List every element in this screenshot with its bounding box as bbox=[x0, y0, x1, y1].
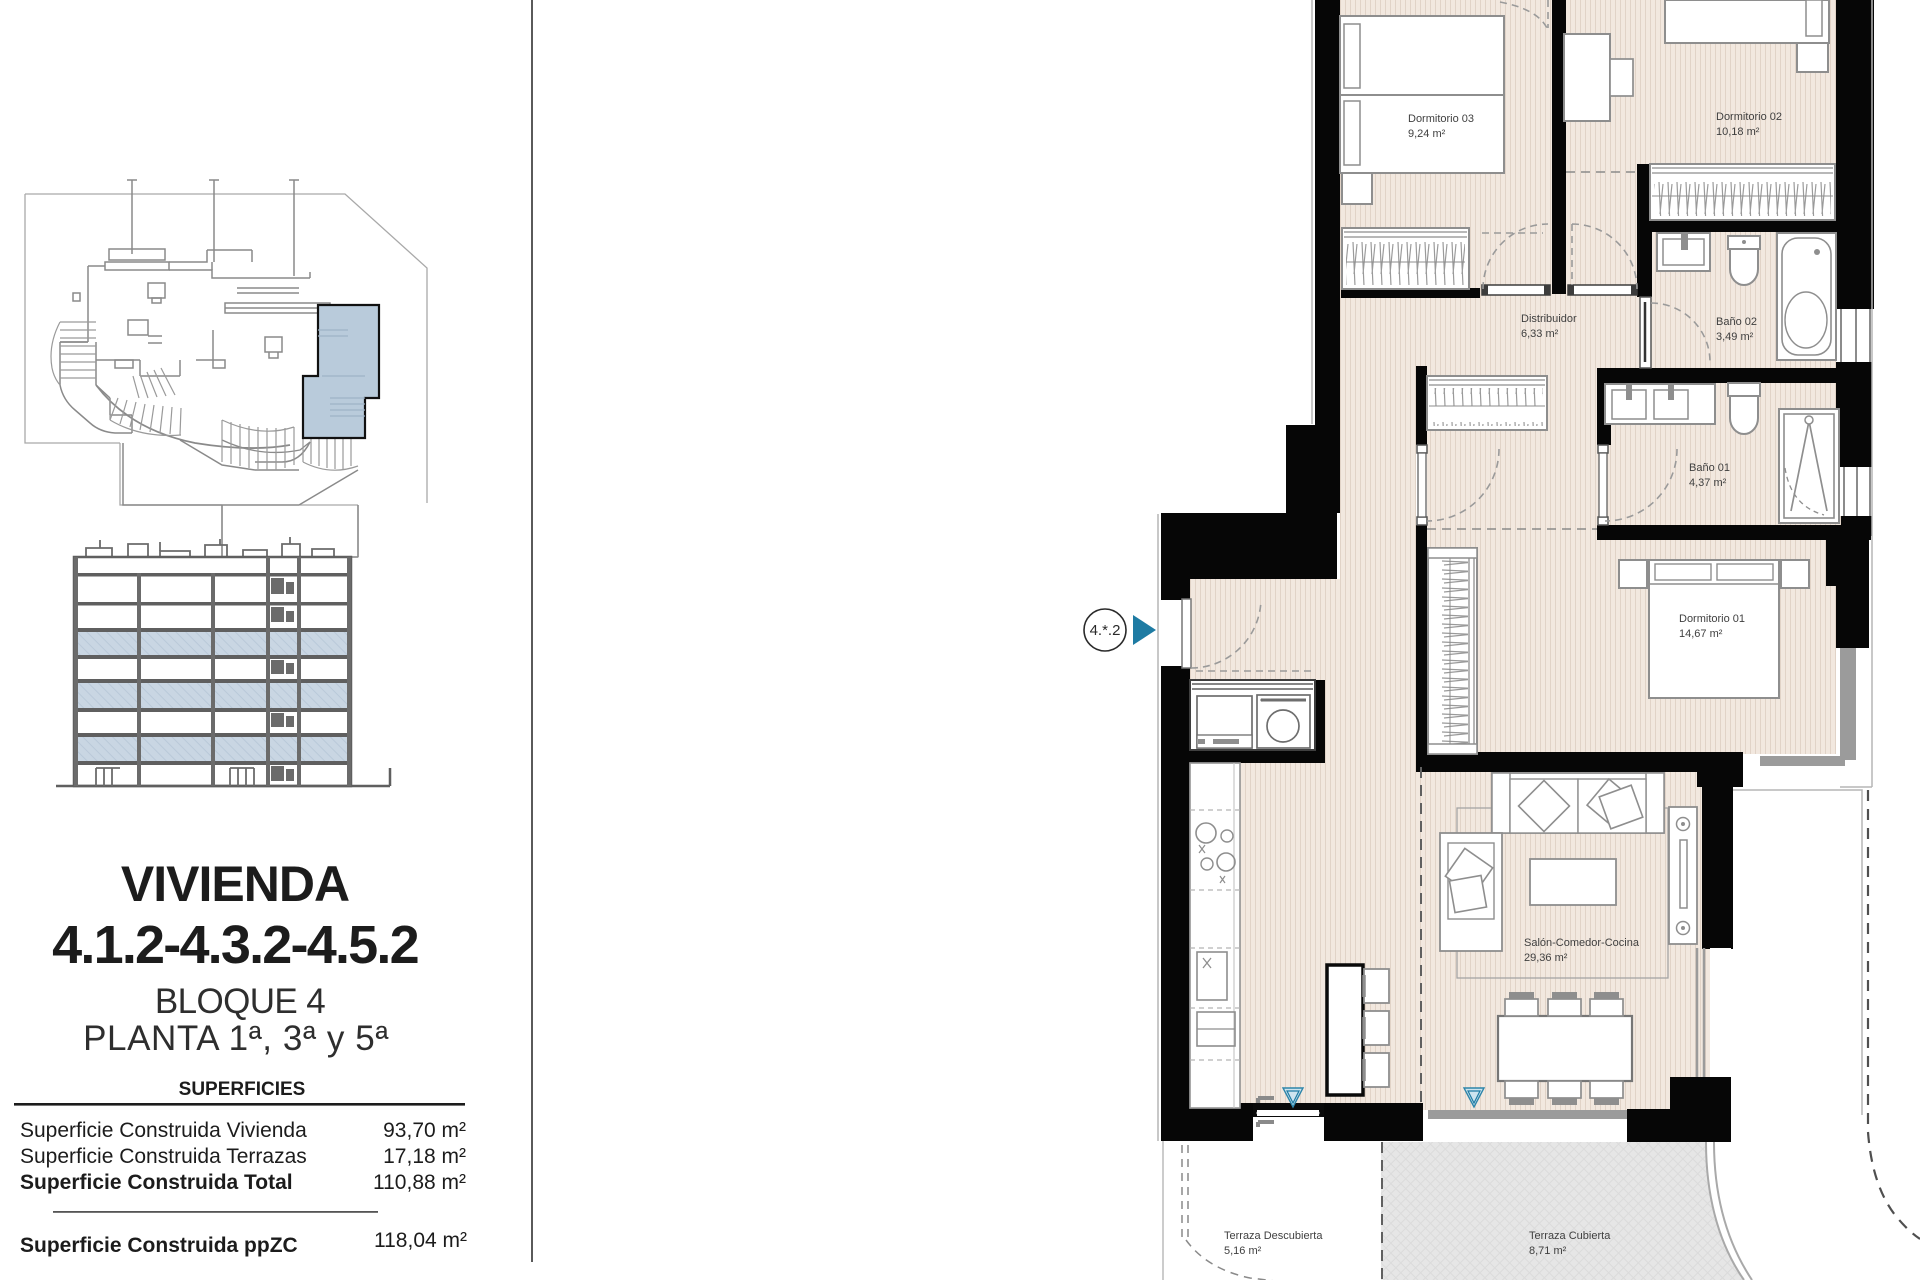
svg-text:14,67 m²: 14,67 m² bbox=[1679, 628, 1723, 640]
svg-text:Distribuidor: Distribuidor bbox=[1521, 313, 1577, 325]
svg-text:BLOQUE 4: BLOQUE 4 bbox=[155, 982, 325, 1021]
svg-text:110,88 m²: 110,88 m² bbox=[373, 1171, 466, 1194]
svg-text:8,71 m²: 8,71 m² bbox=[1529, 1245, 1567, 1257]
svg-text:Superficie Construida Vivienda: Superficie Construida Vivienda bbox=[20, 1119, 307, 1142]
svg-text:Terraza Descubierta: Terraza Descubierta bbox=[1224, 1230, 1323, 1242]
svg-text:6,33 m²: 6,33 m² bbox=[1521, 328, 1559, 340]
svg-text:Dormitorio 01: Dormitorio 01 bbox=[1679, 613, 1745, 625]
svg-text:Terraza Cubierta: Terraza Cubierta bbox=[1529, 1230, 1611, 1242]
svg-text:9,24 m²: 9,24 m² bbox=[1408, 128, 1446, 140]
svg-text:Salón-Comedor-Cocina: Salón-Comedor-Cocina bbox=[1524, 937, 1640, 949]
svg-text:4.*.2: 4.*.2 bbox=[1090, 622, 1121, 639]
svg-text:29,36 m²: 29,36 m² bbox=[1524, 952, 1568, 964]
svg-text:3,49 m²: 3,49 m² bbox=[1716, 331, 1754, 343]
svg-text:Baño 02: Baño 02 bbox=[1716, 316, 1757, 328]
svg-text:VIVIENDA: VIVIENDA bbox=[121, 856, 349, 912]
svg-text:SUPERFICIES: SUPERFICIES bbox=[179, 1079, 306, 1100]
svg-text:118,04 m²: 118,04 m² bbox=[374, 1229, 467, 1252]
svg-text:PLANTA 1ª, 3ª y 5ª: PLANTA 1ª, 3ª y 5ª bbox=[83, 1019, 389, 1058]
svg-text:Baño 01: Baño 01 bbox=[1689, 462, 1730, 474]
svg-text:10,18 m²: 10,18 m² bbox=[1716, 126, 1760, 138]
svg-text:5,16 m²: 5,16 m² bbox=[1224, 1245, 1262, 1257]
svg-text:Superficie Construida Total: Superficie Construida Total bbox=[20, 1171, 293, 1194]
svg-text:Superficie Construida Terrazas: Superficie Construida Terrazas bbox=[20, 1145, 307, 1168]
svg-text:Dormitorio 03: Dormitorio 03 bbox=[1408, 113, 1474, 125]
svg-text:17,18 m²: 17,18 m² bbox=[383, 1145, 466, 1168]
svg-text:Dormitorio 02: Dormitorio 02 bbox=[1716, 111, 1782, 123]
svg-text:4,37 m²: 4,37 m² bbox=[1689, 477, 1727, 489]
svg-text:93,70 m²: 93,70 m² bbox=[383, 1119, 466, 1142]
svg-text:4.1.2-4.3.2-4.5.2: 4.1.2-4.3.2-4.5.2 bbox=[52, 915, 418, 975]
svg-text:Superficie Construida ppZC: Superficie Construida ppZC bbox=[20, 1234, 298, 1257]
